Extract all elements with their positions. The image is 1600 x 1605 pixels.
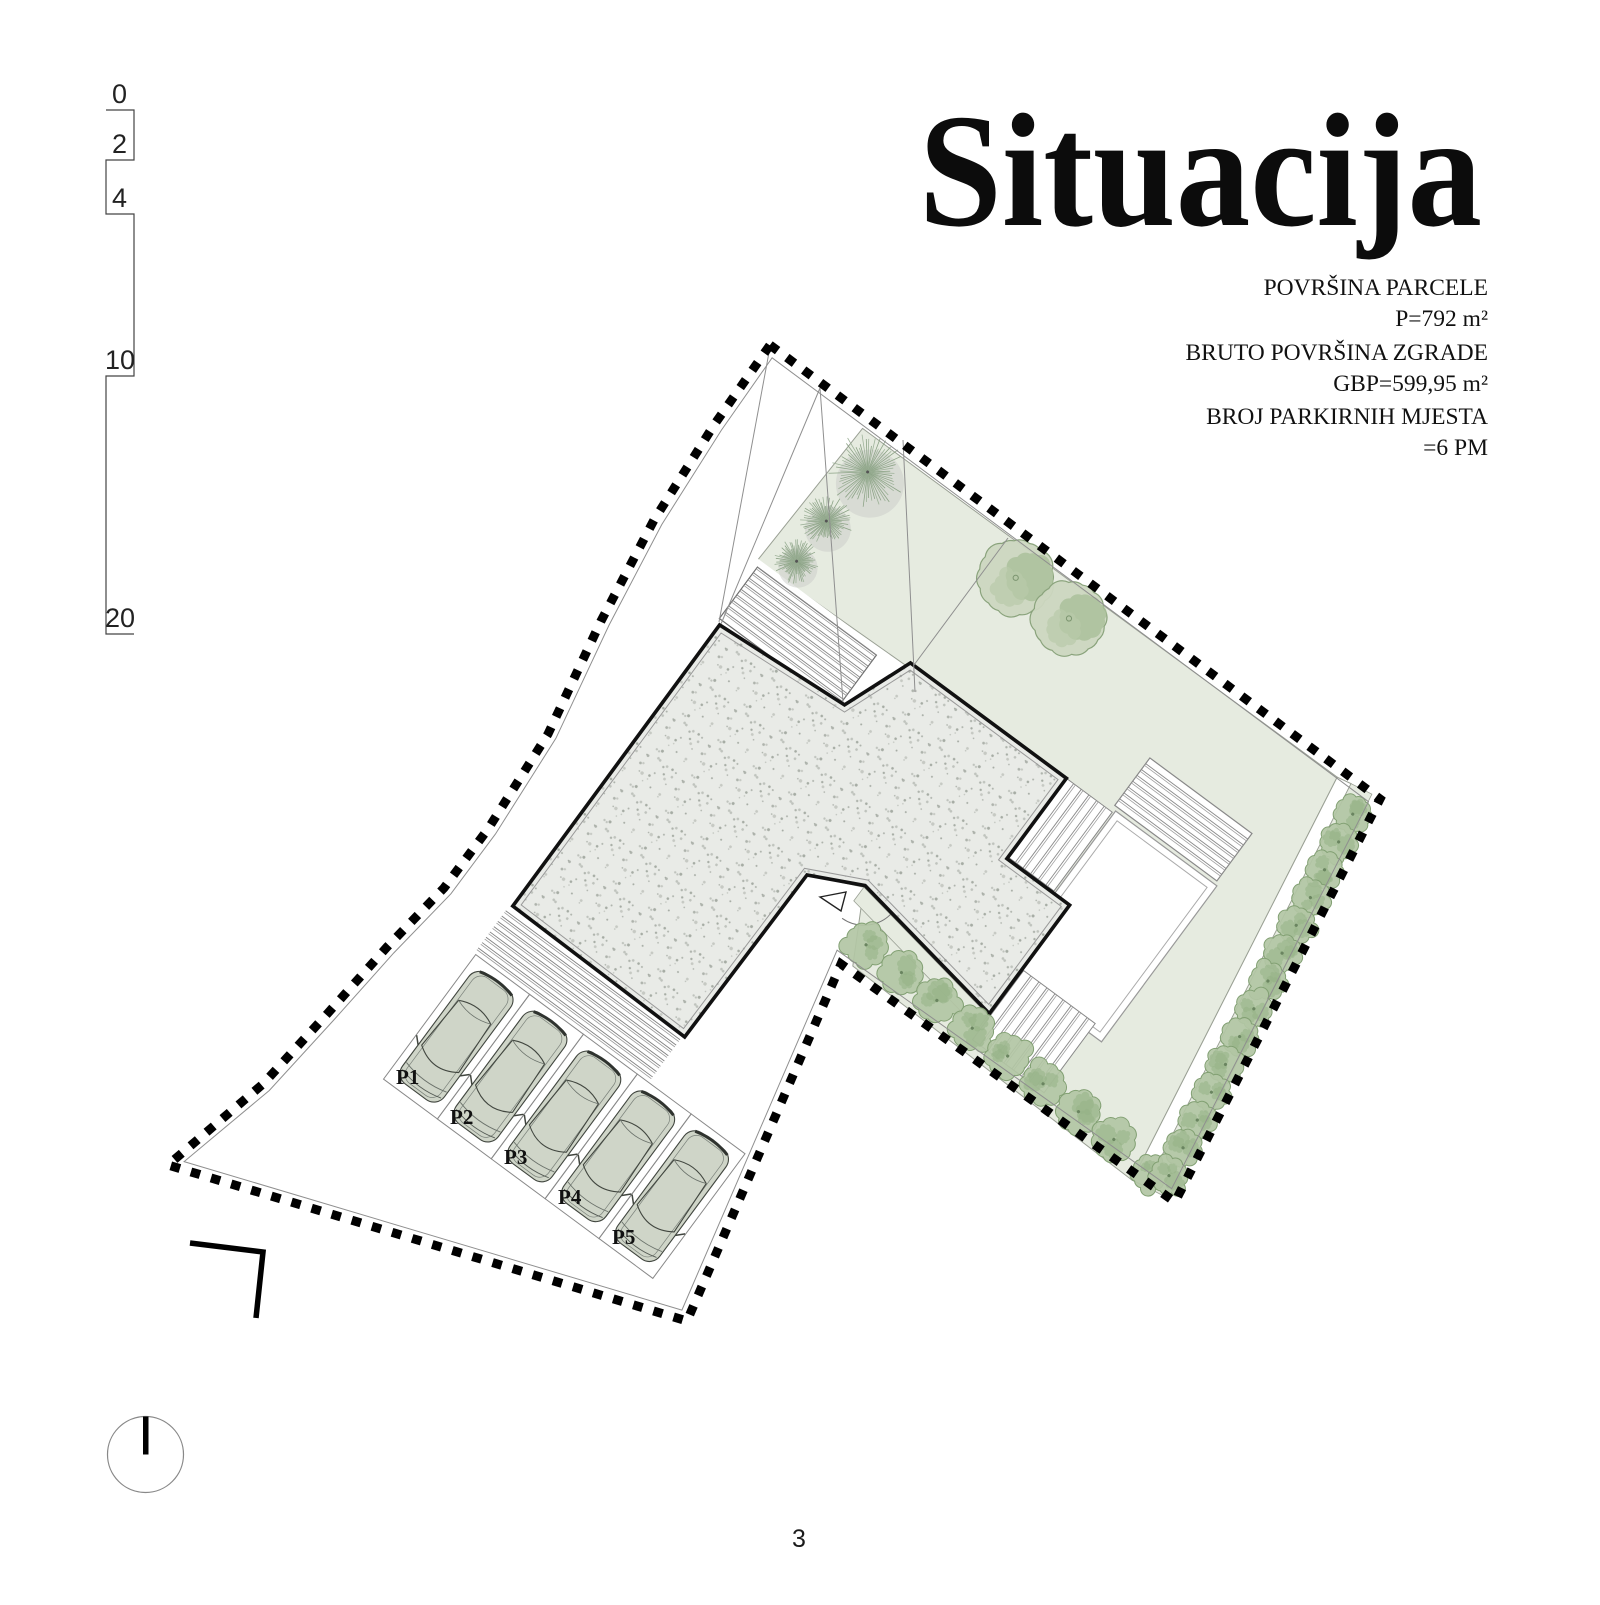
svg-text:2: 2: [112, 129, 127, 159]
svg-text:P5: P5: [612, 1225, 635, 1249]
svg-text:3: 3: [792, 1525, 806, 1553]
svg-text:P2: P2: [450, 1105, 473, 1129]
svg-text:20: 20: [105, 603, 135, 633]
svg-text:GBP=599,95 m²: GBP=599,95 m²: [1333, 371, 1488, 397]
svg-text:P1: P1: [396, 1065, 419, 1089]
svg-text:P3: P3: [504, 1145, 527, 1169]
svg-text:P4: P4: [558, 1185, 582, 1209]
svg-text:P=792 m²: P=792 m²: [1395, 306, 1488, 332]
svg-text:=6 PM: =6 PM: [1423, 435, 1488, 461]
svg-text:Situacija: Situacija: [919, 82, 1482, 261]
svg-text:10: 10: [105, 345, 135, 375]
svg-text:BROJ PARKIRNIH MJESTA: BROJ PARKIRNIH MJESTA: [1206, 404, 1488, 430]
svg-text:0: 0: [112, 79, 127, 109]
svg-text:4: 4: [112, 183, 127, 213]
svg-text:BRUTO POVRŠINA ZGRADE: BRUTO POVRŠINA ZGRADE: [1186, 339, 1489, 366]
svg-text:POVRŠINA PARCELE: POVRŠINA PARCELE: [1264, 274, 1488, 301]
